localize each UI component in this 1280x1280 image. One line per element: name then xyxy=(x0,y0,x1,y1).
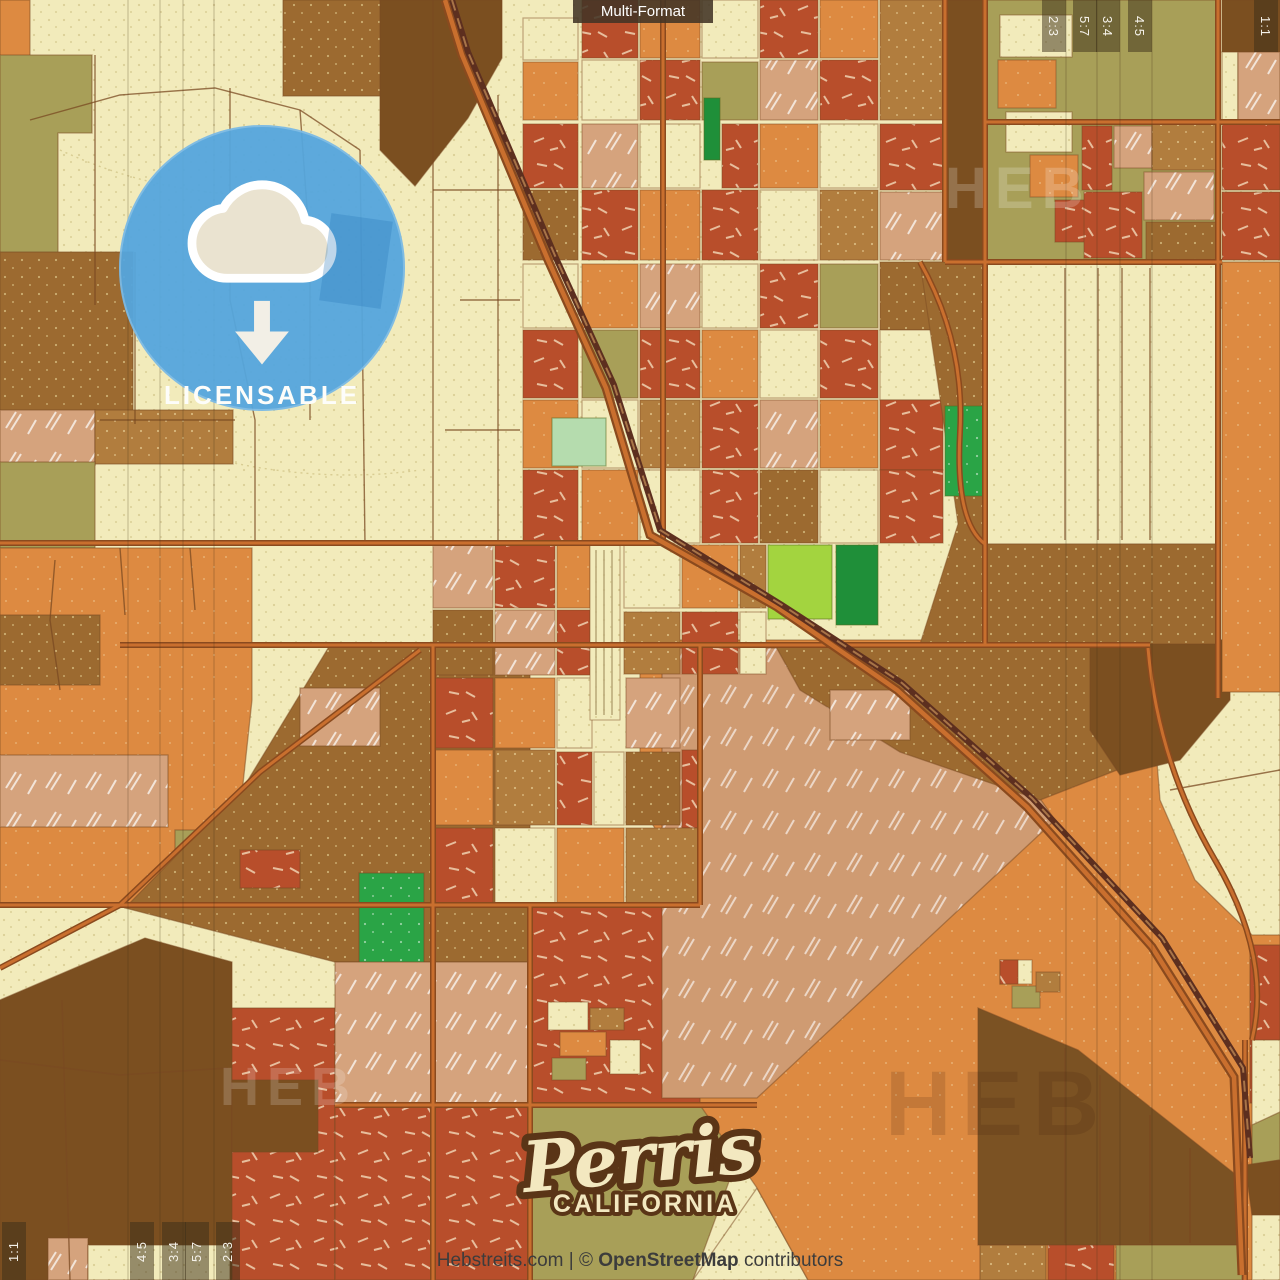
footer-attribution: Hebstreits.com | © OpenStreetMap contrib… xyxy=(0,1250,1280,1272)
watermark-text: HEB xyxy=(220,1057,358,1117)
licensable-badge: LICENSABLE xyxy=(119,125,405,411)
map-poster: HEB HEB HEB Perris CALIFORNIA Multi-Form… xyxy=(0,0,1280,1280)
watermark-text: HEB xyxy=(945,156,1091,221)
watermark-text: HEB xyxy=(885,1053,1109,1155)
ratio-marker-2-3-top: 2:3 xyxy=(1042,0,1066,52)
footer-copyright: © xyxy=(579,1250,593,1271)
ratio-marker-5-7-top: 5:7 xyxy=(1073,0,1097,52)
rail-yard xyxy=(590,545,620,720)
multi-format-label: Multi-Format xyxy=(601,3,685,20)
footer-separator: | xyxy=(569,1250,574,1271)
ratio-label: 4:5 xyxy=(1132,15,1147,36)
licensable-label: LICENSABLE xyxy=(164,380,360,411)
ratio-label: 3:4 xyxy=(1100,15,1115,36)
multi-format-tag: Multi-Format xyxy=(573,0,713,23)
footer-site: Hebstreits.com xyxy=(437,1250,564,1271)
ratio-marker-3-4-top: 3:4 xyxy=(1096,0,1120,52)
ratio-label: 5:7 xyxy=(1077,15,1092,36)
ratio-label: 2:3 xyxy=(1046,15,1061,36)
badge-accent-shape xyxy=(319,213,393,309)
footer-attribution-suffix: contributors xyxy=(744,1250,843,1271)
city-logo-state: CALIFORNIA xyxy=(553,1190,737,1218)
footer-attribution-name: OpenStreetMap xyxy=(598,1250,738,1271)
cloud-download-icon xyxy=(187,159,337,370)
ratio-marker-1-1-top: 1:1 xyxy=(1254,0,1278,52)
ratio-marker-4-5-top: 4:5 xyxy=(1128,0,1152,52)
ratio-label: 1:1 xyxy=(1258,15,1273,36)
